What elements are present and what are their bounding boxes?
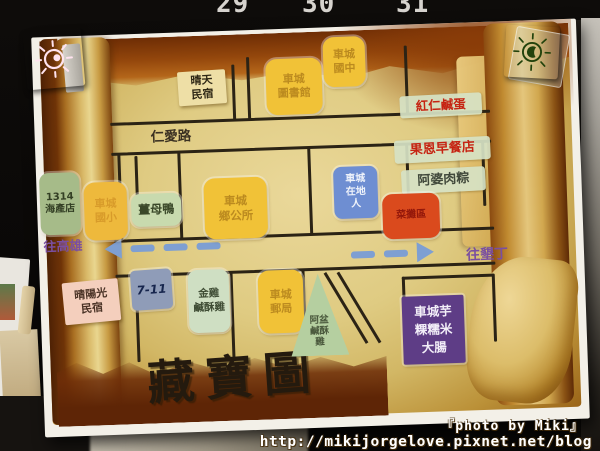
ruler-number: 30 <box>302 0 335 19</box>
pink-magnet <box>23 28 86 91</box>
arrow-dash <box>163 243 187 251</box>
red-salted-egg: 紅仁鹹蛋 <box>399 92 482 118</box>
seafood-1314: 1314 海產店 <box>39 172 81 235</box>
arrow-to-kenting <box>351 242 435 265</box>
street-label-renai-road: 仁愛路 <box>150 124 191 145</box>
arrow-left-icon <box>104 239 122 260</box>
checheng-junior-high: 車城 國中 <box>322 36 366 87</box>
ruler-number: 29 <box>216 0 249 19</box>
sun-doodle-icon <box>30 35 78 83</box>
arrow-dash <box>351 250 375 258</box>
arrow-dash <box>130 244 154 252</box>
watermark: 『photo by Miki』 http://mikijorgelove.pix… <box>260 415 592 450</box>
watermark-url: http://mikijorgelove.pixnet.net/blog <box>260 434 592 450</box>
taro-rice-sausage: 車城芋 粿糯米 大腸 <box>401 295 465 365</box>
checheng-local: 車城 在地 人 <box>333 166 379 220</box>
arrow-dash <box>196 242 220 250</box>
sunshine-minsu: 晴陽光 民宿 <box>62 278 122 325</box>
map-board: 仁愛路 往高雄 往墾丁 藏寶圖 晴天 民宿車城 圖書館車城 國中紅仁鹹蛋果恩早餐… <box>31 19 590 438</box>
watermark-credit: 『photo by Miki』 <box>260 415 584 434</box>
checheng-elementary: 車城 國小 <box>83 181 128 240</box>
arrow-dash <box>384 249 408 257</box>
township-office: 車城 鄉公所 <box>203 177 268 240</box>
photo-scene: 29 30 31 仁愛路 往高雄 <box>0 0 600 451</box>
post-office: 車城 郵局 <box>257 269 304 334</box>
photo-scrap-mini <box>0 284 15 320</box>
ruler-number: 31 <box>396 0 429 19</box>
direction-label-kenting: 往墾丁 <box>466 243 509 264</box>
apo-rice-dumpling: 阿婆肉粽 <box>401 166 486 194</box>
arrow-right-icon <box>417 242 435 263</box>
market-stall-area: 菜攤區 <box>382 192 441 239</box>
seven-eleven: 7-11 <box>130 268 174 311</box>
sun-doodle-icon <box>509 30 555 74</box>
golden-chicken: 金雞 鹹酥雞 <box>187 269 230 333</box>
direction-label-kaohsiung: 往高雄 <box>43 235 83 255</box>
treasure-map: 仁愛路 往高雄 往墾丁 藏寶圖 晴天 民宿車城 圖書館車城 國中紅仁鹹蛋果恩早餐… <box>31 19 590 438</box>
qingtian-minsu: 晴天 民宿 <box>177 69 227 106</box>
green-magnet <box>504 25 561 80</box>
arrow-to-kaohsiung <box>104 235 221 259</box>
checheng-library: 車城 圖書館 <box>265 58 323 116</box>
ginger-duck: 薑母鴨 <box>131 193 182 228</box>
guoen-breakfast: 果恩早餐店 <box>394 136 491 164</box>
